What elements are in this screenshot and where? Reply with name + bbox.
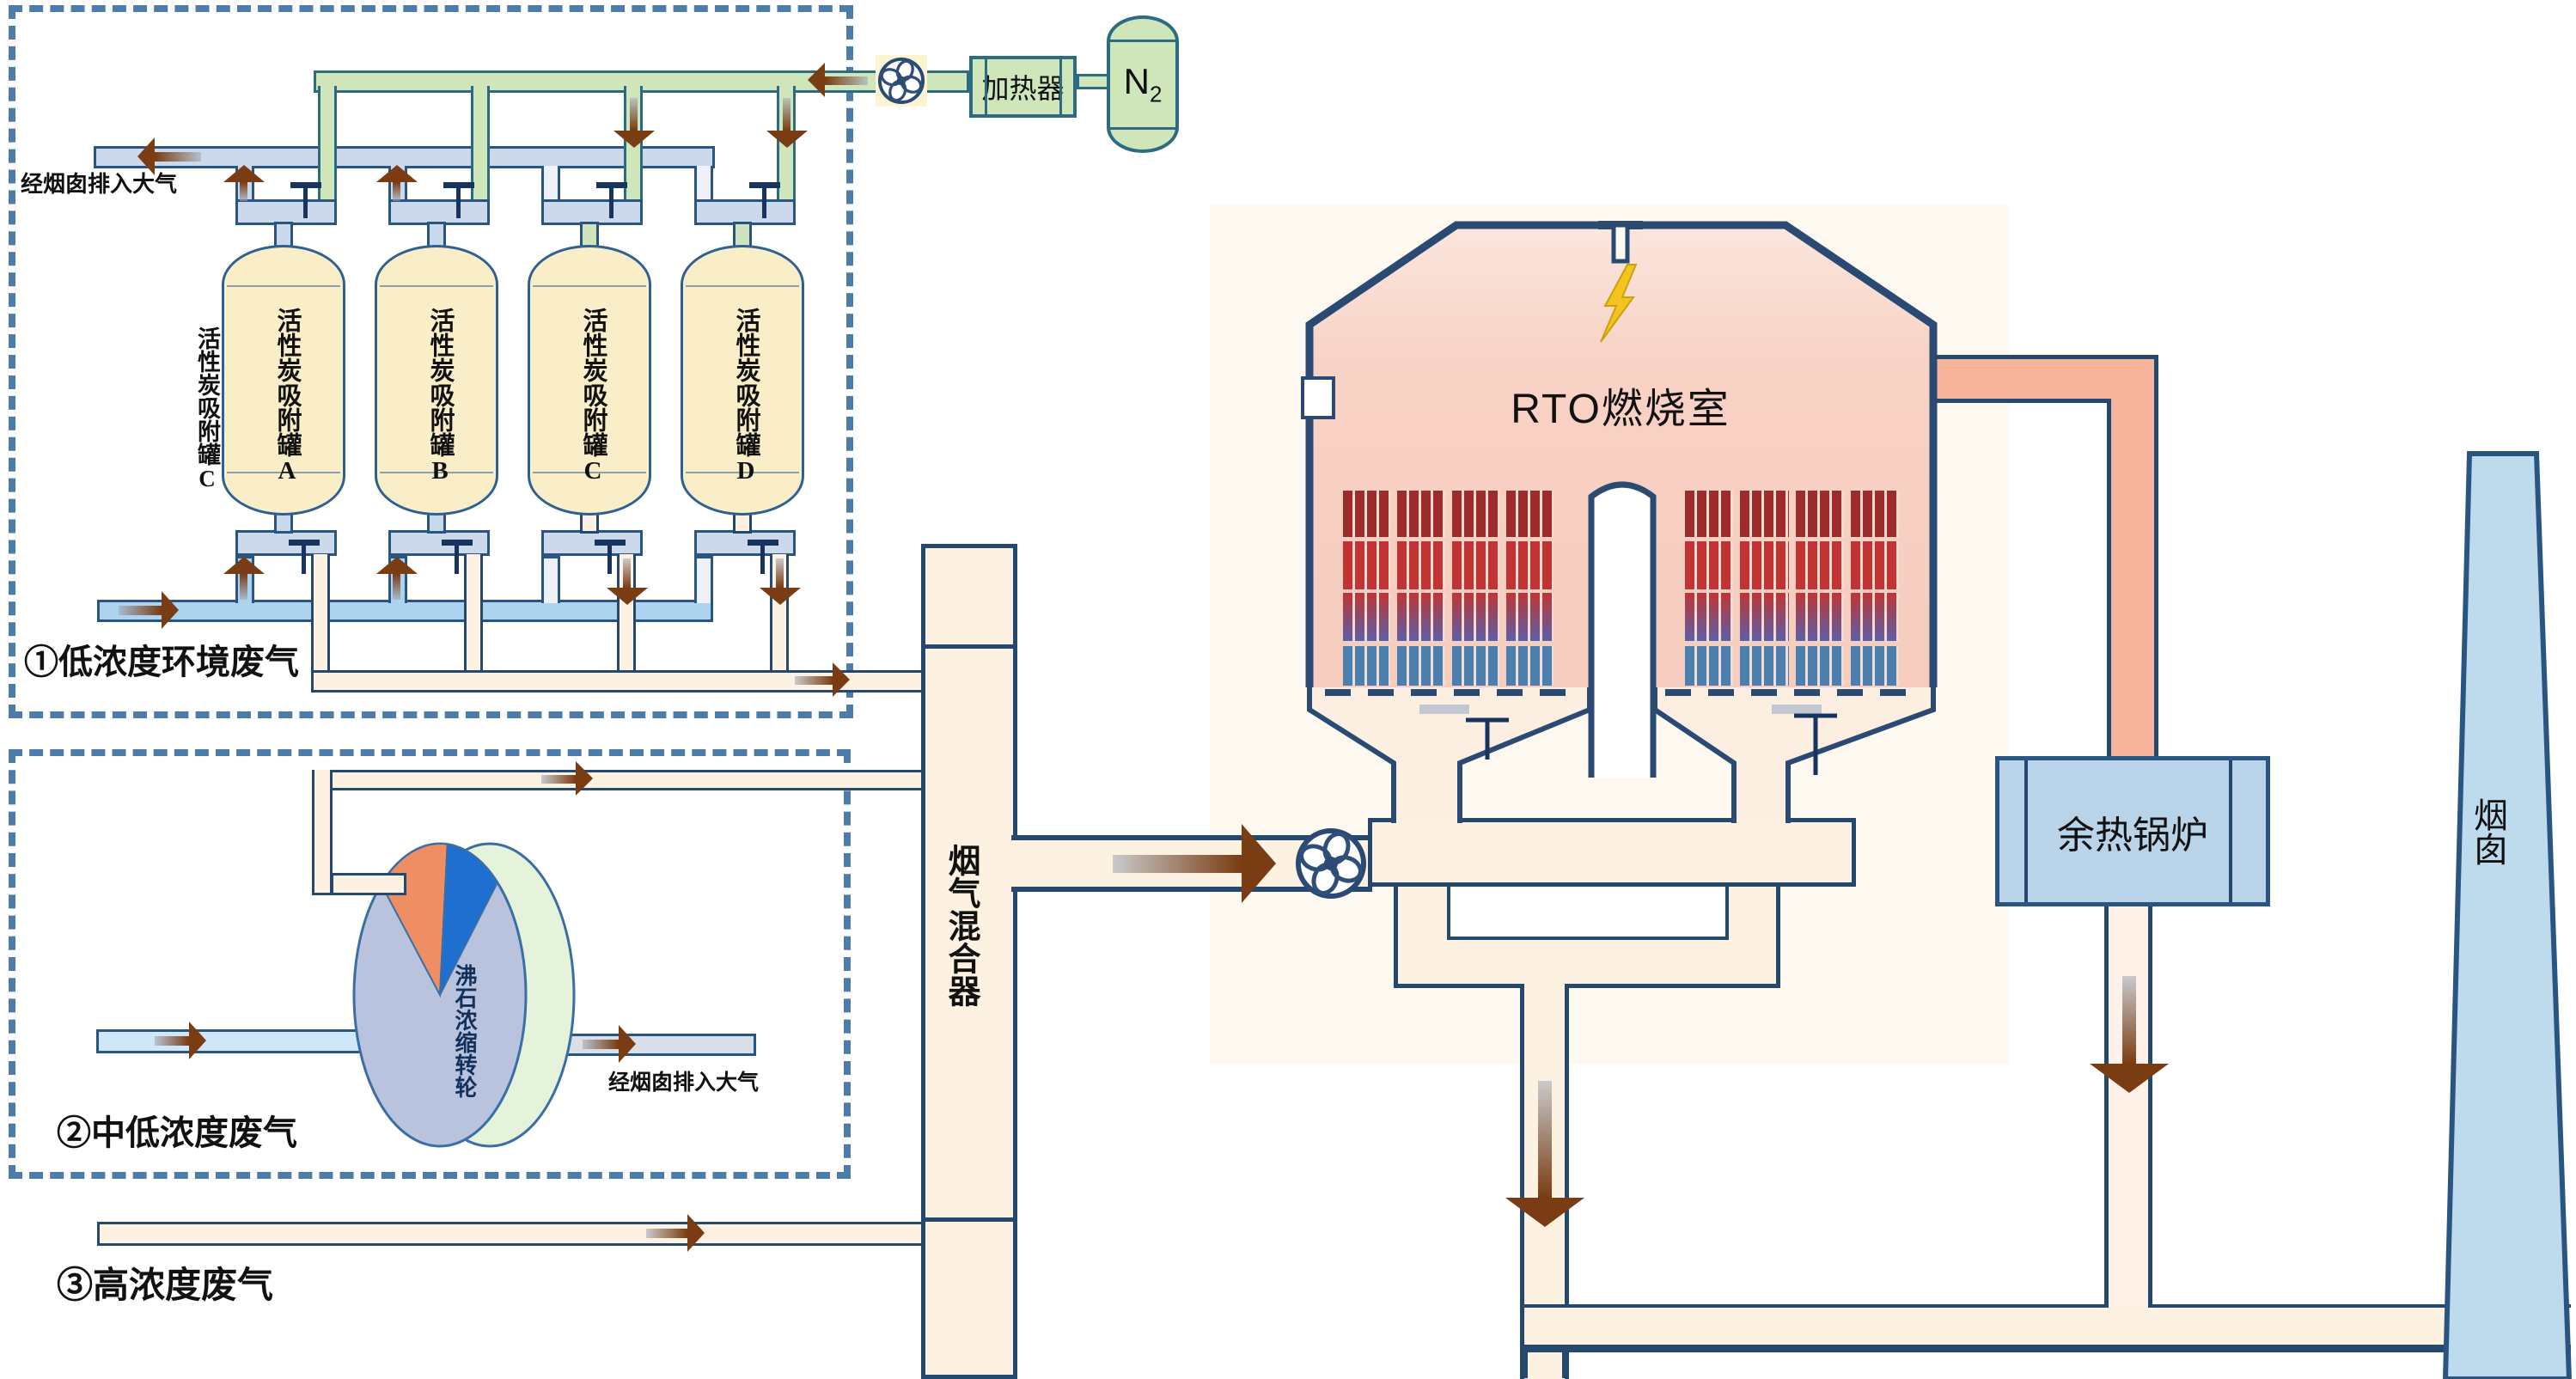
valve-icon — [443, 182, 474, 188]
ceramic-block-group — [1506, 593, 1554, 641]
ceramic-block-group — [1343, 491, 1390, 537]
wheel-desorption-riser-pipe — [312, 770, 333, 895]
valve-icon — [760, 546, 765, 574]
tank-label: 活性炭吸附罐B — [421, 299, 454, 492]
boiler-inner-line-left — [2024, 760, 2028, 902]
ceramic-block-group — [1796, 593, 1844, 641]
ceramic-block-group — [1685, 491, 1733, 537]
stream2-label: ②中低浓度废气 — [57, 1105, 297, 1155]
valve-icon — [302, 546, 306, 574]
flow-arrow-right — [119, 603, 179, 618]
ceramic-bed-row — [1343, 491, 1554, 537]
tank-label: 活性炭吸附罐A — [268, 299, 301, 492]
ceramic-block-group — [1397, 593, 1444, 641]
tank-label: 活性炭吸附罐D — [727, 299, 760, 492]
tank-bottom-junction-pipe — [694, 530, 796, 556]
mixer-divider-bottom — [925, 1217, 1013, 1222]
valve-icon — [762, 188, 766, 218]
tank-side-label: 活性炭吸附罐C — [191, 326, 220, 507]
heater-label: 加热器 — [981, 67, 1064, 107]
nitrogen-tank: N2 — [1107, 15, 1179, 153]
valve-icon — [595, 540, 626, 546]
flow-arrow-up — [237, 557, 250, 600]
rto-label: RTO燃烧室 — [1449, 375, 1792, 435]
wheel-top-feed-pipe — [312, 770, 928, 790]
ceramic-block-group — [1851, 541, 1899, 589]
stream3-label: ③高浓度废气 — [57, 1256, 273, 1309]
heater-inner-line-left — [985, 59, 987, 114]
ceramic-block-group — [1740, 593, 1788, 641]
flow-arrow-down — [2115, 976, 2143, 1093]
ceramic-bed-row — [1343, 593, 1554, 641]
ceramic-block-group — [1740, 541, 1788, 589]
ceramic-block-group — [1343, 593, 1390, 641]
ceramic-block-group — [1851, 491, 1899, 537]
ceramic-bed-row — [1685, 491, 1899, 537]
flow-arrow-right — [155, 1034, 206, 1048]
tank-label: 活性炭吸附罐C — [574, 299, 607, 492]
left-hopper-neck — [1394, 763, 1460, 823]
n2-inner-line-top — [1110, 40, 1175, 42]
valve-icon — [749, 182, 780, 188]
ceramic-bed-row — [1685, 593, 1899, 641]
wheel-desorption-stub-pipe — [331, 873, 406, 895]
center-channel — [1591, 485, 1653, 778]
ceramic-block-group — [1796, 541, 1844, 589]
tank-desorption-drop-pipe — [464, 554, 483, 675]
bottom-return-stub — [1524, 1352, 1566, 1378]
high-concentration-pipe — [97, 1222, 928, 1246]
wheel-label: 沸石浓缩转轮 — [448, 964, 479, 1136]
process-flow-diagram: 活性炭吸附罐A活性炭吸附罐B活性炭吸附罐C活性炭吸附罐D 沸石浓缩转轮 — [0, 0, 2576, 1379]
tank-desorption-drop-pipe — [311, 554, 330, 675]
tank-top-stub-pipe — [541, 166, 560, 203]
ceramic-block-group — [1397, 541, 1444, 589]
chimney-label: 烟囱 — [2475, 797, 2512, 952]
mixer-label: 烟气混合器 — [942, 844, 980, 1028]
ceramic-block-group — [1506, 491, 1554, 537]
ceramic-block-group — [1506, 541, 1554, 589]
valve-icon — [596, 182, 627, 188]
chamber-wall-notch — [1303, 378, 1334, 418]
mixer-divider-top — [925, 644, 1013, 649]
flow-arrow-left — [137, 149, 201, 164]
ceramic-block-group — [1740, 646, 1788, 686]
flow-arrow-right — [541, 772, 593, 786]
ceramic-bed-row — [1343, 646, 1554, 686]
burner-stem — [1614, 225, 1627, 261]
ceramic-block-group — [1343, 646, 1390, 686]
right-hopper-neck — [1734, 763, 1788, 823]
ceramic-bed-row — [1343, 541, 1554, 589]
tank-bottom-stub-pipe — [694, 556, 713, 603]
ceramic-block-group — [1452, 491, 1499, 537]
flow-arrow-down — [773, 558, 786, 605]
n2-sub: 2 — [1150, 81, 1162, 107]
heater-inner-line-right — [1059, 59, 1062, 114]
boiler-label: 余热锅炉 — [2057, 804, 2208, 859]
ceramic-block-group — [1452, 541, 1499, 589]
exhaust-to-atmosphere-note-top: 经烟囱排入大气 — [21, 167, 177, 198]
tank-top-stub-pipe — [694, 166, 713, 203]
ceramic-block-group — [1851, 646, 1899, 686]
rto-hot-outlet-pipe-vertical — [2107, 403, 2158, 760]
ceramic-bed-row — [1685, 646, 1899, 686]
flow-arrow-right — [795, 674, 850, 687]
flow-arrow-right — [646, 1226, 705, 1241]
flow-arrow-up — [390, 165, 403, 201]
flow-arrow-right — [1113, 847, 1276, 880]
ceramic-block-group — [1796, 491, 1844, 537]
ceramic-block-group — [1506, 646, 1554, 686]
ceramic-block-group — [1685, 593, 1733, 641]
boiler-outlet-downpipe — [2104, 902, 2152, 1308]
ceramic-block-group — [1397, 646, 1444, 686]
valve-icon — [303, 188, 308, 218]
exhaust-to-atmosphere-note-wheel: 经烟囱排入大气 — [608, 1065, 759, 1096]
left-hopper-tick — [1419, 705, 1469, 714]
valve-icon — [456, 188, 461, 218]
valve-icon — [290, 182, 321, 188]
ceramic-block-group — [1452, 593, 1499, 641]
tank-bottom-junction-pipe — [235, 530, 337, 556]
flow-arrow-down — [627, 98, 640, 148]
valve-icon — [609, 188, 613, 218]
tank-bottom-junction-pipe — [541, 530, 643, 556]
ceramic-block-group — [1452, 646, 1499, 686]
ceramic-block-group — [1397, 491, 1444, 537]
n2-inner-line-bottom — [1110, 127, 1175, 130]
boiler-inner-line-right — [2229, 760, 2232, 902]
flow-arrow-down — [780, 98, 793, 148]
regeneration-fan-pad — [876, 55, 927, 107]
flow-arrow-left — [808, 74, 868, 88]
valve-icon — [289, 540, 320, 546]
ceramic-bed-row — [1685, 541, 1899, 589]
flow-arrow-down — [620, 558, 633, 605]
tank-bottom-stub-pipe — [541, 556, 560, 603]
ceramic-block-group — [1740, 491, 1788, 537]
hot-pipe-elbow-patch — [2111, 397, 2154, 409]
right-hopper-tick — [1772, 705, 1822, 714]
valve-icon — [455, 546, 459, 574]
ceramic-block-group — [1851, 593, 1899, 641]
bottom-return-pipe — [1520, 1304, 2571, 1352]
flow-arrow-down — [1531, 1081, 1559, 1227]
valve-icon — [442, 540, 473, 546]
n2-label: N — [1124, 61, 1150, 101]
valve-icon — [607, 546, 612, 574]
ceramic-block-group — [1685, 646, 1733, 686]
heater-n2-stub-pipe — [1077, 74, 1111, 89]
ceramic-block-group — [1796, 646, 1844, 686]
flow-arrow-up — [237, 165, 250, 201]
tank-bottom-junction-pipe — [388, 530, 490, 556]
ceramic-block-group — [1343, 541, 1390, 589]
valve-icon — [748, 540, 778, 546]
stream1-label: ①低浓度环境废气 — [24, 634, 299, 684]
flow-arrow-up — [390, 557, 403, 600]
ceramic-block-group — [1685, 541, 1733, 589]
